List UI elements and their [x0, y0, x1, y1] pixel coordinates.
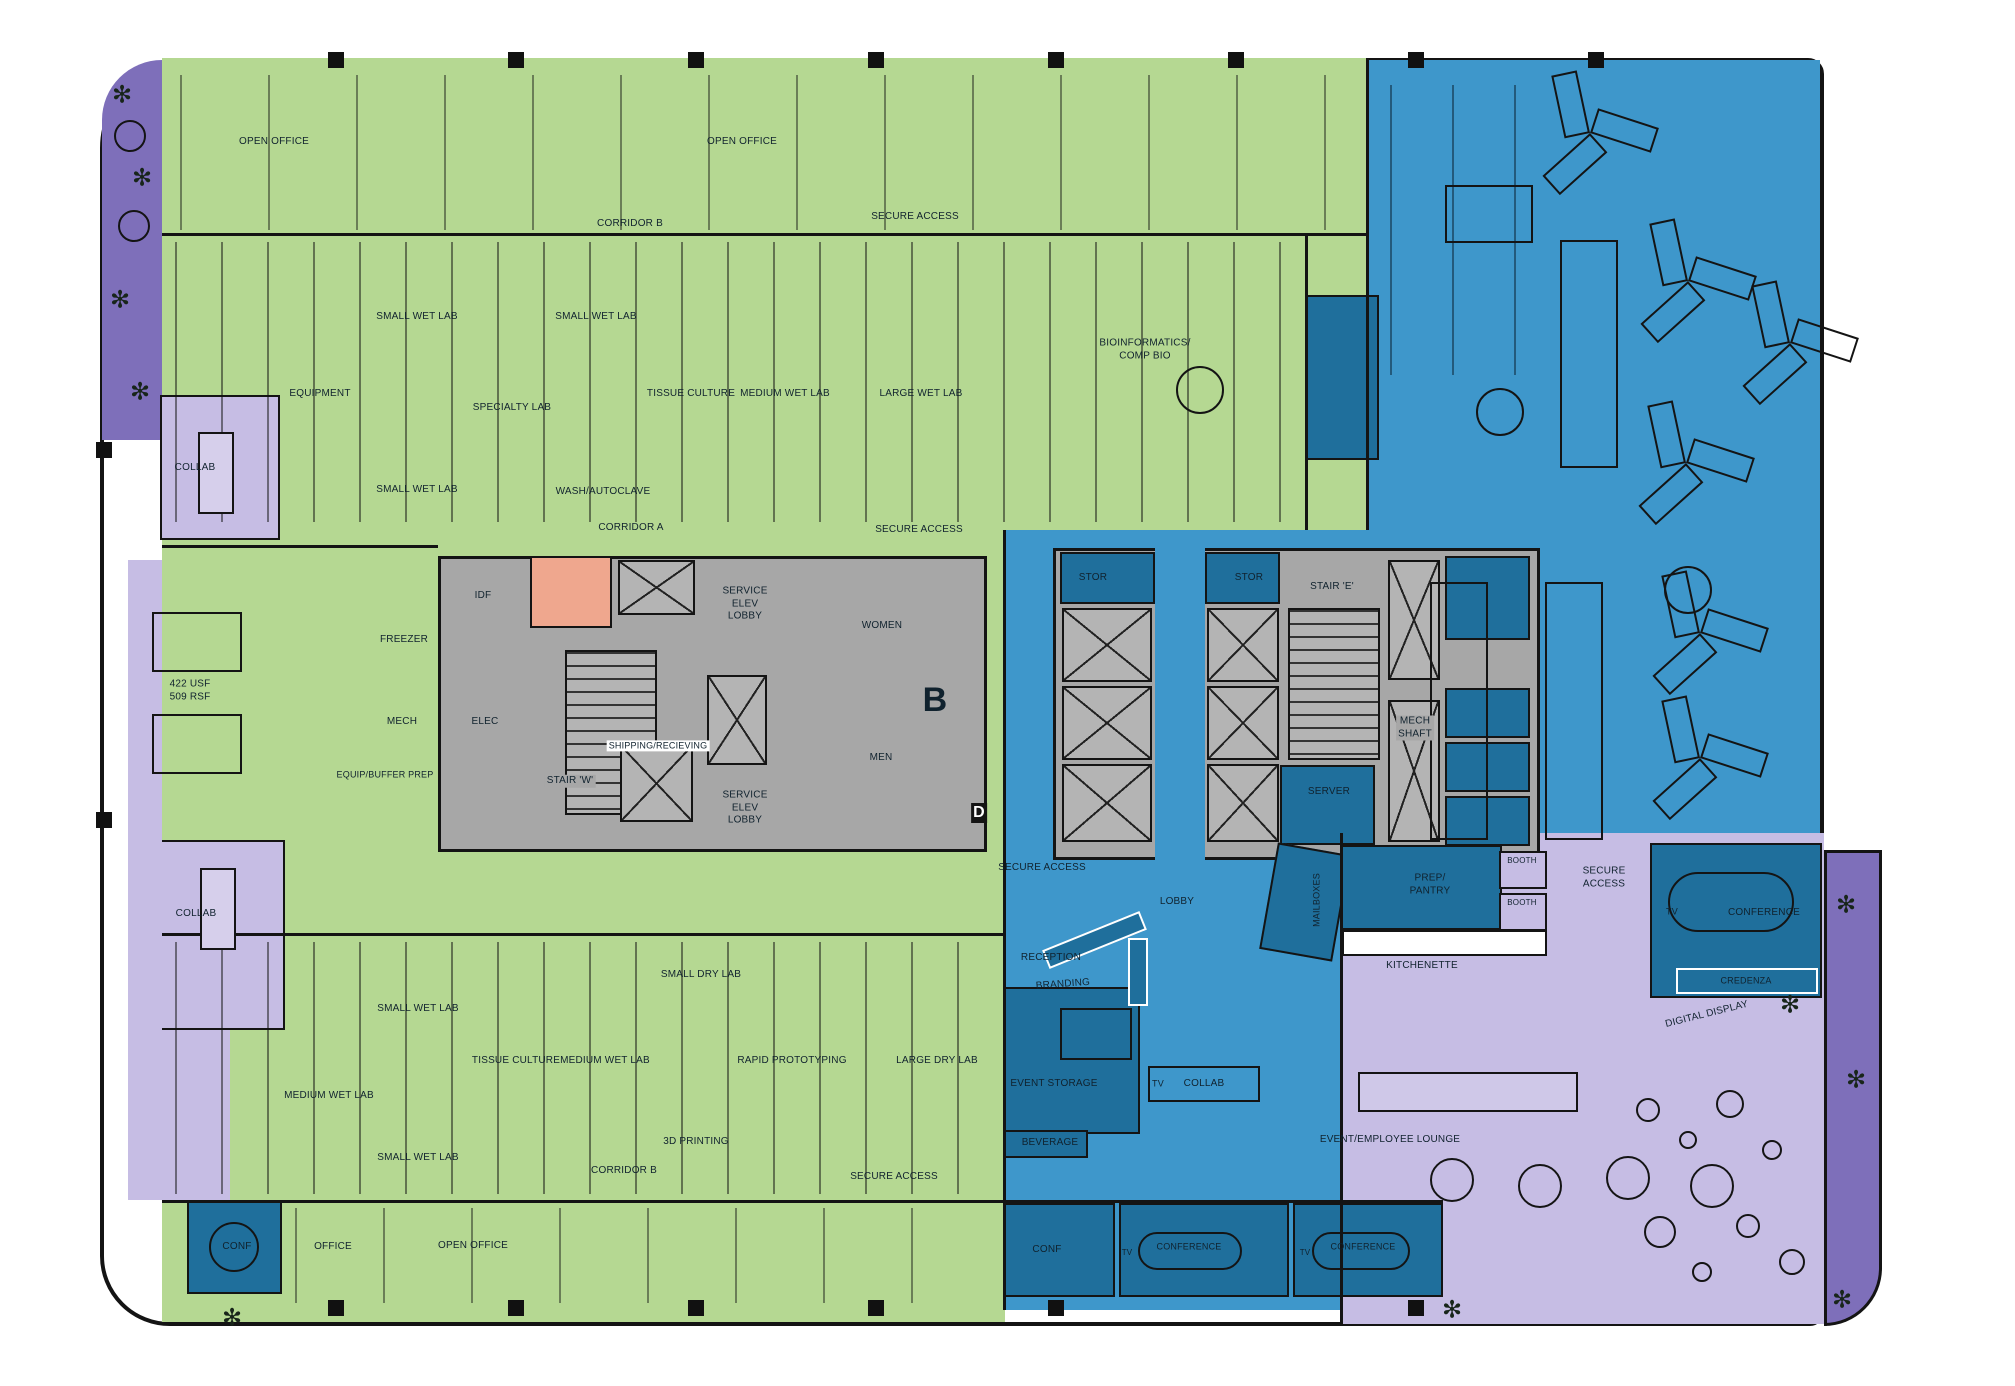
room-label-corridor-a: CORRIDOR A	[598, 522, 663, 535]
furniture-desk-west-1	[152, 612, 242, 672]
room-label-equipment: EQUIPMENT	[289, 388, 350, 401]
column-marker	[688, 1300, 704, 1316]
room-label-secure-access: SECURE ACCESS	[850, 1171, 938, 1184]
room-label-office: OFFICE	[314, 1241, 352, 1254]
room-label-secure-access: SECURE ACCESS	[1583, 866, 1626, 891]
column-marker	[96, 812, 112, 828]
furniture-pouf-3	[1716, 1090, 1744, 1118]
furniture-event-storage-shelving	[1060, 1008, 1132, 1060]
room-label-men: MEN	[870, 752, 893, 765]
zone-lab-zone-north	[162, 58, 1368, 530]
room-label-rapid-prototyping: RAPID PROTOTYPING	[737, 1055, 846, 1068]
furniture-pouf-1	[1636, 1098, 1660, 1122]
furniture-bench-ne-top	[1445, 185, 1533, 243]
room-label-open-office: OPEN OFFICE	[707, 136, 777, 149]
shaft-elev-e-3	[1207, 764, 1279, 842]
furniture-bench-row-ne-1	[1560, 240, 1618, 468]
furniture-comp-bio-table	[1176, 366, 1224, 414]
furniture-pouf-7	[1736, 1214, 1760, 1238]
floor-plan: ✻✻✻✻✻✻✻✻✻✻OPEN OFFICEOPEN OFFICECORRIDOR…	[0, 0, 2015, 1386]
room-stor-west	[1060, 552, 1155, 604]
room-label-large-wet-lab: LARGE WET LAB	[880, 388, 963, 401]
furniture-bench-row-ne-3	[1545, 582, 1603, 840]
room-label-small-wet-lab: SMALL WET LAB	[555, 311, 637, 324]
room-label-service-elev-lobby: SERVICE ELEV LOBBY	[722, 789, 767, 827]
plant-icon: ✻	[1780, 991, 1800, 1020]
plant-icon: ✻	[1442, 1296, 1462, 1325]
room-label-tv: TV	[1122, 1248, 1133, 1258]
shaft-service-elevator	[707, 675, 767, 765]
furniture-pouf-2	[1679, 1131, 1697, 1149]
room-label-open-office: OPEN OFFICE	[438, 1240, 508, 1253]
room-label-conf: CONF	[222, 1241, 251, 1254]
room-label-secure-access: SECURE ACCESS	[871, 211, 959, 224]
room-label-wash-autoclave: WASH/AUTOCLAVE	[556, 486, 651, 499]
column-marker	[868, 52, 884, 68]
room-label-medium-wet-lab: MEDIUM WET LAB	[740, 388, 830, 401]
wall-1	[162, 545, 438, 548]
stair-e-flight	[1288, 608, 1380, 760]
plant-icon: ✻	[1836, 891, 1856, 920]
room-label-service-elev-lobby: SERVICE ELEV LOBBY	[722, 585, 767, 623]
furniture-lounge-table-1	[1430, 1158, 1474, 1202]
room-label-server: SERVER	[1308, 786, 1350, 799]
room-label-beverage: BEVERAGE	[1022, 1137, 1079, 1150]
plant-icon: ✻	[132, 164, 152, 193]
room-label-small-wet-lab: SMALL WET LAB	[377, 1003, 459, 1016]
shaft-elev-w-2	[1062, 686, 1152, 760]
room-label-idf: IDF	[475, 590, 492, 603]
room-label-prep-pantry: PREP/ PANTRY	[1410, 873, 1451, 898]
room-label-small-dry-lab: SMALL DRY LAB	[661, 969, 741, 982]
room-label-large-dry-lab: LARGE DRY LAB	[896, 1055, 978, 1068]
room-label-freezer: FREEZER	[380, 634, 428, 647]
wall-3	[162, 1200, 1443, 1203]
room-label-small-wet-lab: SMALL WET LAB	[377, 1152, 459, 1165]
column-marker	[508, 52, 524, 68]
room-label-shipping-recieving: SHIPPING/RECIEVING	[607, 740, 710, 751]
furniture-lounge-table-2	[1518, 1164, 1562, 1208]
room-label-equip-buffer-prep: EQUIP/BUFFER PREP	[337, 769, 434, 780]
room-label-corridor-b: CORRIDOR B	[591, 1165, 657, 1178]
room-label-booth: BOOTH	[1507, 898, 1536, 908]
column-marker	[1588, 52, 1604, 68]
room-label-422-usf-509-rsf: 422 USF 509 RSF	[170, 679, 211, 704]
plant-icon: ✻	[1832, 1286, 1852, 1315]
wall-5	[1366, 58, 1369, 530]
room-label-medium-wet-lab: MEDIUM WET LAB	[560, 1055, 650, 1068]
column-marker	[1048, 52, 1064, 68]
room-label-3d-printing: 3D PRINTING	[663, 1136, 729, 1149]
furniture-lounge-table-4	[1690, 1164, 1734, 1208]
room-label-credenza: CREDENZA	[1720, 975, 1771, 986]
room-label-collab: COLLAB	[175, 462, 216, 475]
shaft-elev-e-2	[1207, 686, 1279, 760]
room-label-elec: ELEC	[472, 716, 499, 729]
plant-icon: ✻	[130, 378, 150, 407]
wall-4	[1003, 530, 1006, 1310]
room-label-conf: CONF	[1032, 1244, 1061, 1257]
shaft-elev-e-1	[1207, 608, 1279, 682]
shaft-elev-w-1	[1062, 608, 1152, 682]
room-label-conference: CONFERENCE	[1330, 1241, 1395, 1252]
room-label-collab: COLLAB	[1184, 1078, 1225, 1091]
room-label-tissue-culture: TISSUE CULTURE	[472, 1055, 560, 1068]
room-label-stair-e: STAIR 'E'	[1310, 581, 1354, 594]
furniture-kitchenette-counter	[1342, 930, 1547, 956]
room-label-mech-shaft: MECH SHAFT	[1396, 716, 1434, 741]
column-marker	[96, 442, 112, 458]
room-server	[1280, 765, 1375, 845]
room-label-stor: STOR	[1079, 572, 1107, 585]
plant-icon: ✻	[110, 286, 130, 315]
column-marker	[1408, 1300, 1424, 1316]
zone-idf-adjacent-room	[530, 556, 612, 628]
room-label-event-storage: EVENT STORAGE	[1010, 1078, 1097, 1091]
room-label-tv: TV	[1666, 906, 1678, 917]
furniture-pouf-6	[1692, 1262, 1712, 1282]
room-label-stair-w: STAIR 'W'	[545, 775, 596, 788]
room-label-secure-access: SECURE ACCESS	[998, 862, 1086, 875]
column-marker	[688, 52, 704, 68]
column-marker	[328, 52, 344, 68]
room-label-tissue-culture: TISSUE CULTURE	[647, 388, 735, 401]
plant-icon: ✻	[112, 81, 132, 110]
room-label-conference: CONFERENCE	[1156, 1241, 1221, 1252]
plant-icon: ✻	[1846, 1066, 1866, 1095]
room-label-stor: STOR	[1235, 572, 1263, 585]
zone-core-east-corridor	[1155, 548, 1205, 860]
room-label-specialty-lab: SPECIALTY LAB	[473, 402, 551, 415]
furniture-lounge-long-table	[1358, 1072, 1578, 1112]
furniture-reception-desk-b	[1128, 938, 1148, 1006]
room-label-kitchenette: KITCHENETTE	[1386, 960, 1458, 973]
furniture-bench-row-ne-2	[1430, 582, 1488, 840]
room-label-booth: BOOTH	[1507, 856, 1536, 866]
furniture-desk-west-2	[152, 714, 242, 774]
shaft-shipping-shaft	[620, 745, 693, 822]
furniture-pouf-5	[1644, 1216, 1676, 1248]
wall-6	[1305, 233, 1308, 530]
room-label-conference: CONFERENCE	[1728, 907, 1800, 920]
room-label-small-wet-lab: SMALL WET LAB	[376, 311, 458, 324]
plant-icon: ✻	[222, 1304, 242, 1333]
room-label-tv: TV	[1300, 1248, 1311, 1258]
wall-2	[162, 933, 1005, 936]
room-label-open-office: OPEN OFFICE	[239, 136, 309, 149]
room-label-tv: TV	[1152, 1078, 1164, 1089]
room-label-bioinformatics-comp-bio: BIOINFORMATICS/ COMP BIO	[1099, 338, 1190, 363]
room-label-collab: COLLAB	[176, 908, 217, 921]
column-marker	[1408, 52, 1424, 68]
furniture-pouf-4	[1762, 1140, 1782, 1160]
room-label-mailboxes: MAILBOXES	[1311, 873, 1322, 927]
column-marker	[1228, 52, 1244, 68]
room-label-medium-wet-lab: MEDIUM WET LAB	[284, 1090, 374, 1103]
room-label-b: B	[923, 679, 948, 722]
room-label-small-wet-lab: SMALL WET LAB	[376, 484, 458, 497]
zone-southwest-lavender	[130, 1030, 230, 1200]
wall-0	[162, 233, 1368, 236]
room-label-reception: RECEPTION	[1021, 952, 1081, 965]
column-marker	[868, 1300, 884, 1316]
shaft-elev-w-3	[1062, 764, 1152, 842]
room-label-corridor-b: CORRIDOR B	[597, 218, 663, 231]
furniture-terrace-table-nw-1	[114, 120, 146, 152]
furniture-terrace-table-nw-2	[118, 210, 150, 242]
shaft-core-shaft-a	[618, 560, 695, 615]
room-label-d: D	[971, 803, 987, 823]
room-label-secure-access: SECURE ACCESS	[875, 524, 963, 537]
room-label-event-employee-lounge: EVENT/EMPLOYEE LOUNGE	[1320, 1134, 1460, 1147]
room-label-mech: MECH	[387, 716, 417, 729]
column-marker	[508, 1300, 524, 1316]
furniture-pouf-8	[1779, 1249, 1805, 1275]
column-marker	[328, 1300, 344, 1316]
furniture-lounge-table-3	[1606, 1156, 1650, 1200]
room-label-women: WOMEN	[862, 620, 902, 633]
room-label-lobby: LOBBY	[1160, 896, 1194, 909]
furniture-meeting-table-ne-1	[1476, 388, 1524, 436]
furniture-conf-table-se	[1668, 872, 1794, 932]
column-marker	[1048, 1300, 1064, 1316]
